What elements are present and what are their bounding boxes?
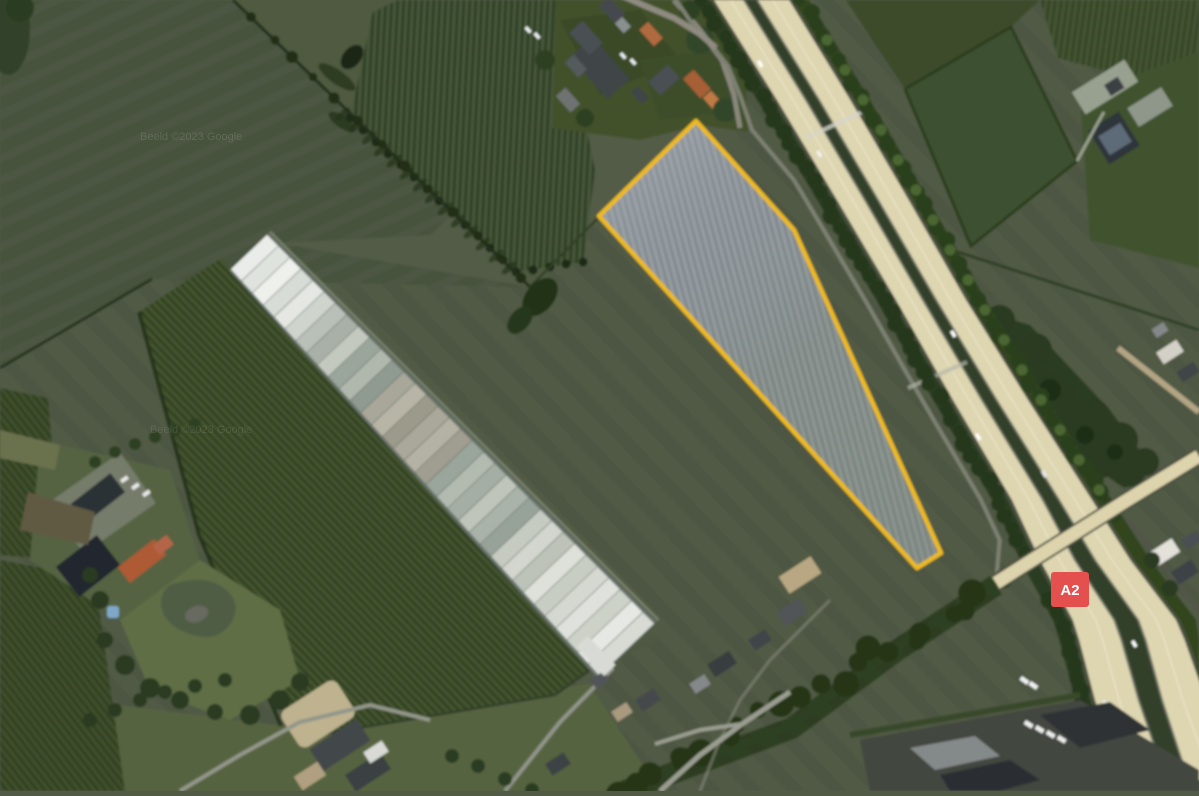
svg-text:A2: A2 <box>1060 582 1079 599</box>
svg-text:Beeld ©2023 Google: Beeld ©2023 Google <box>140 131 242 143</box>
svg-text:Beeld ©2023 Google: Beeld ©2023 Google <box>150 424 252 436</box>
